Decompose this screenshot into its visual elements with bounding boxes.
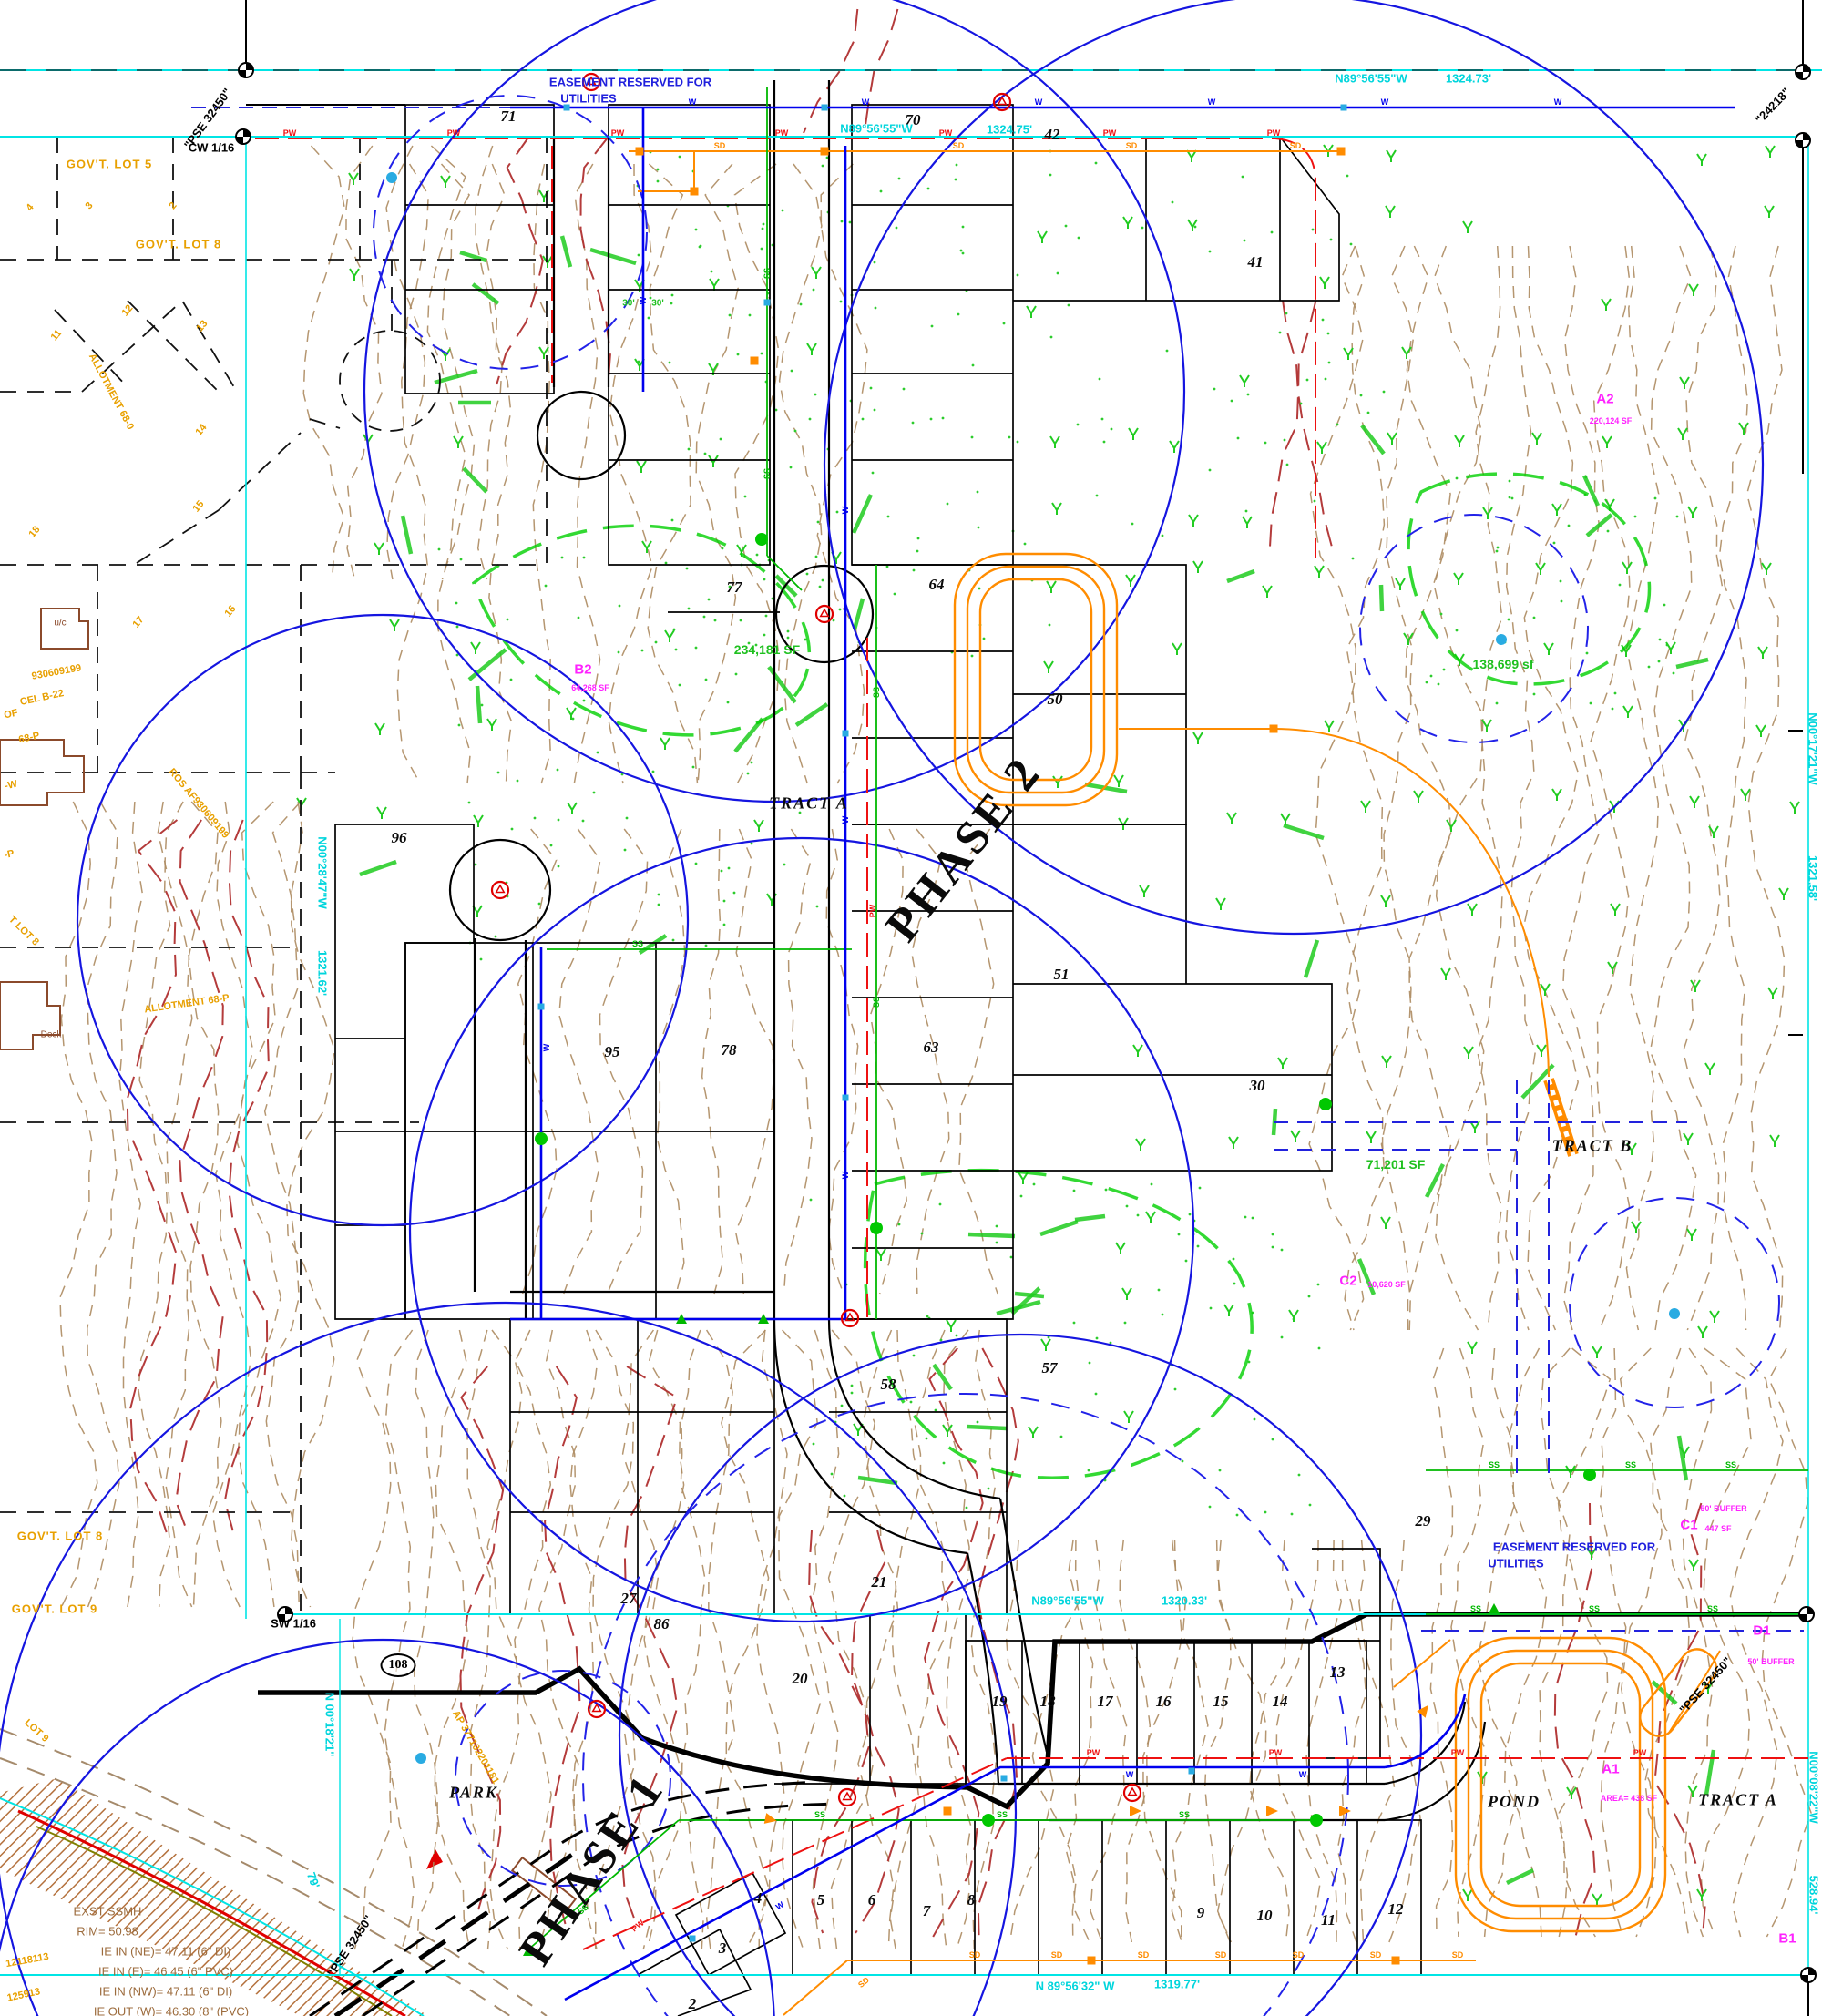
building-footprints	[0, 609, 88, 1049]
existing-road	[0, 1729, 576, 2016]
sewer-lines	[528, 87, 1808, 1949]
wetland-outlines	[474, 474, 1650, 1478]
infiltration-ponds	[955, 554, 1723, 1931]
manholes	[386, 74, 1680, 1827]
vegetation-symbols	[297, 145, 1799, 1906]
buffer-lines-dashed	[191, 107, 1804, 1631]
utility-nodes	[523, 105, 1500, 1965]
green-dash-marks	[360, 236, 1714, 1883]
radius-circles	[0, 0, 1763, 2016]
radius-circles-dashed	[374, 96, 1779, 2016]
contour-lines	[60, 146, 1811, 1949]
lot-grid	[335, 105, 1421, 2016]
site-plan-canvas: GOV'T. LOT 5GOV'T. LOT 8GOV'T. LOT 8GOV'…	[0, 0, 1822, 2016]
plan-drawing	[0, 0, 1822, 2016]
section-lines	[0, 0, 1822, 2016]
